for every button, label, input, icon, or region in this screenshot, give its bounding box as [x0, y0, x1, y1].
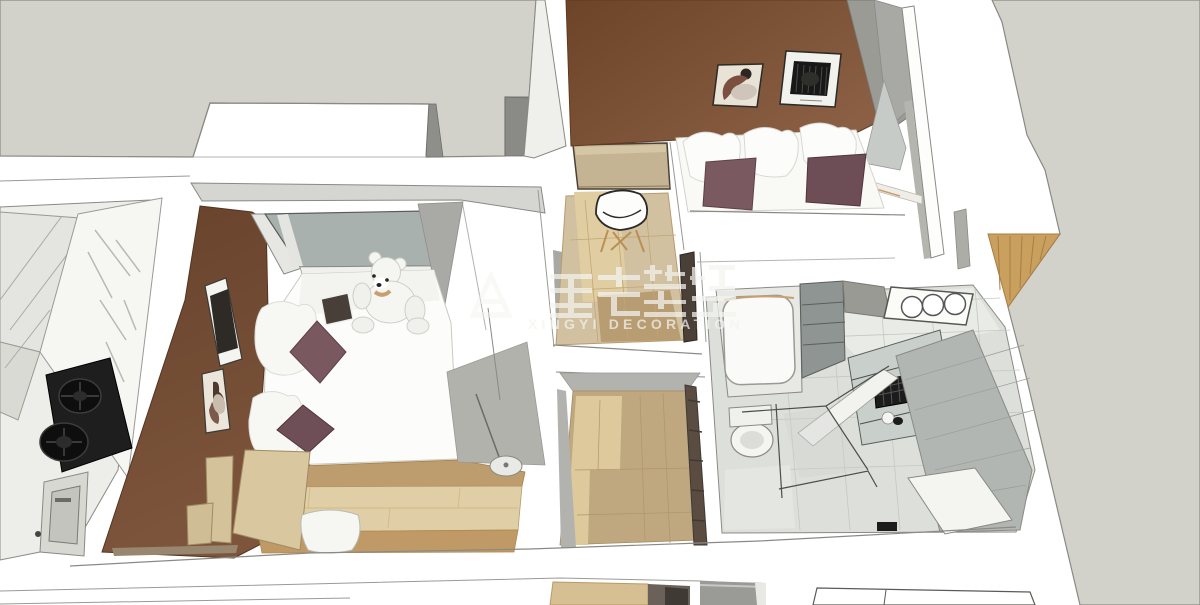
svg-text:XINGYI DECORATION: XINGYI DECORATION: [528, 316, 744, 332]
